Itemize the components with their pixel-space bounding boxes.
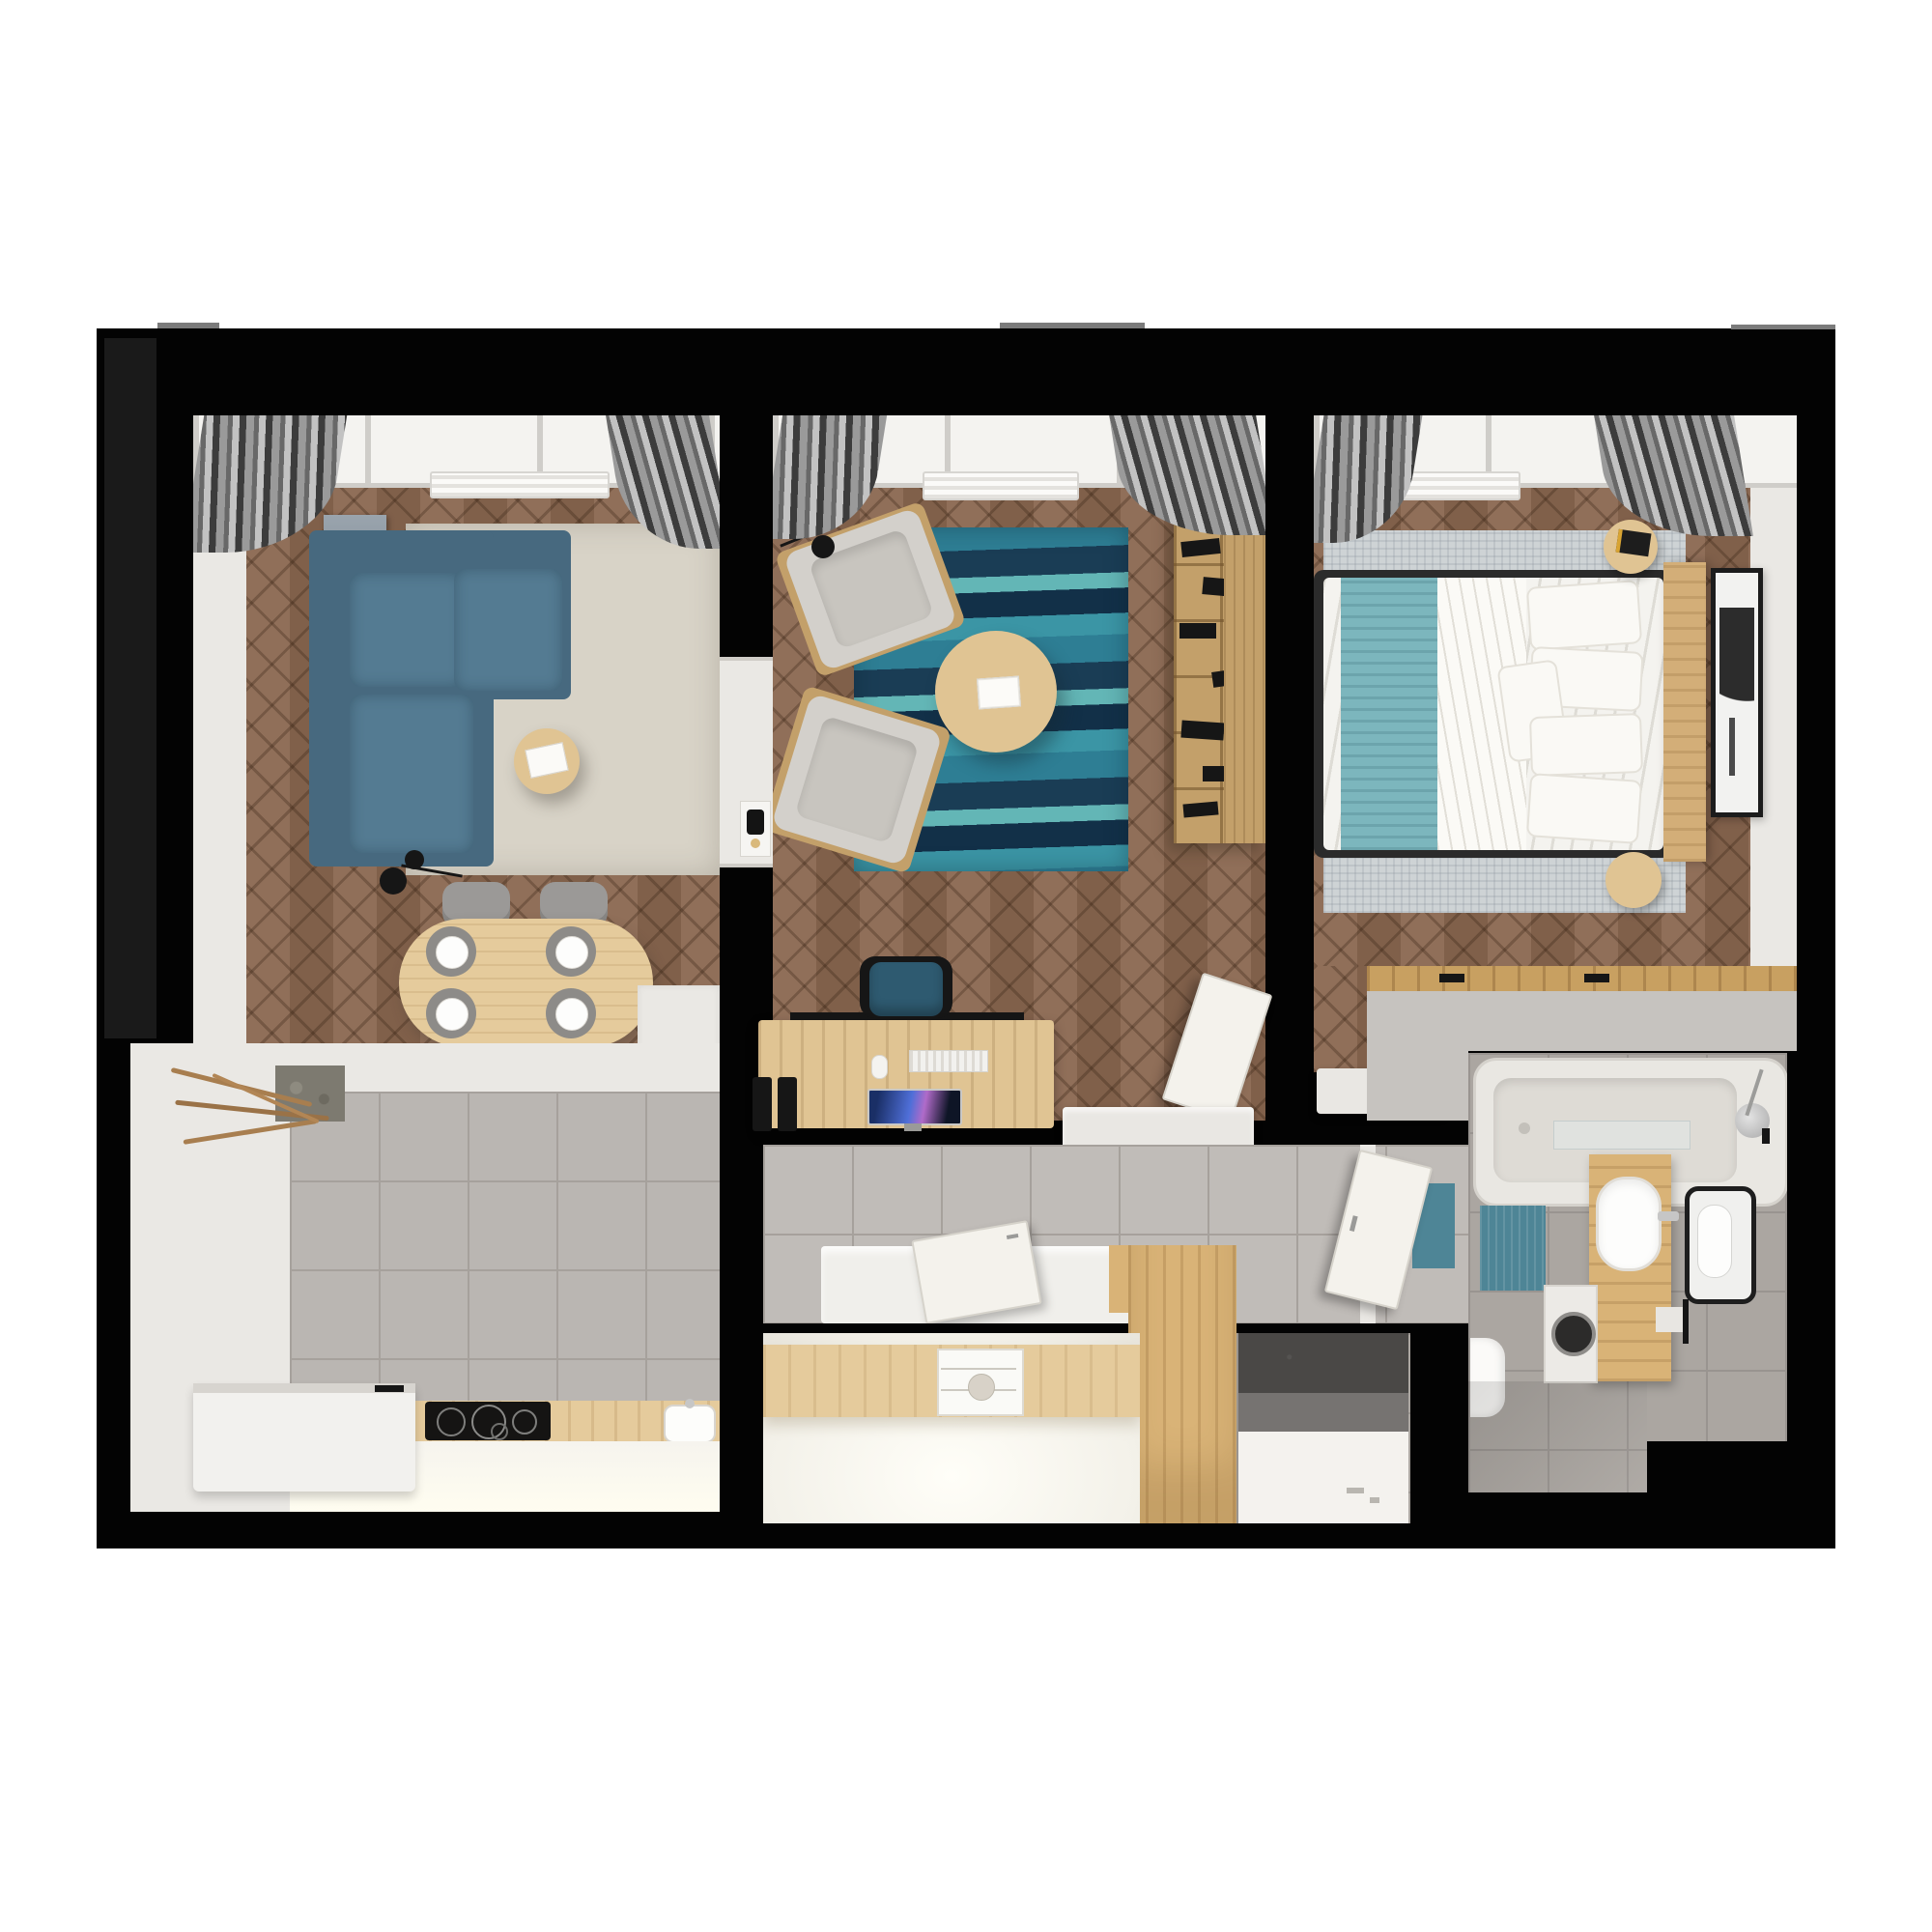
plate bbox=[436, 998, 469, 1031]
towel bbox=[1656, 1307, 1683, 1332]
glass-shelf bbox=[1553, 1121, 1690, 1150]
open-book bbox=[977, 676, 1021, 710]
washer-drum bbox=[1551, 1312, 1596, 1356]
kitchen bbox=[130, 1043, 720, 1512]
nightstand bbox=[1605, 852, 1662, 908]
burner bbox=[512, 1409, 537, 1435]
living-room-left-wall bbox=[193, 483, 246, 1092]
door-handle bbox=[1007, 1234, 1019, 1239]
towel-bar-rail bbox=[1683, 1299, 1689, 1344]
pillow bbox=[1526, 773, 1642, 844]
intercom-button bbox=[751, 838, 760, 848]
magazine bbox=[1615, 529, 1651, 556]
living-room bbox=[193, 415, 720, 1092]
bookshelf-side-panel bbox=[1224, 507, 1265, 843]
mirror-reflection bbox=[1697, 1205, 1732, 1278]
wardrobe-rail bbox=[1367, 966, 1797, 991]
desk-chair bbox=[860, 951, 952, 1024]
drain bbox=[1347, 1488, 1364, 1493]
bathroom bbox=[1468, 1053, 1787, 1492]
intercom-screen bbox=[747, 810, 764, 835]
washing-machine bbox=[1544, 1285, 1598, 1383]
branch-decor bbox=[169, 1058, 362, 1159]
drawer-organizer bbox=[937, 1349, 1024, 1416]
chair-seat bbox=[869, 962, 943, 1016]
teal-throw bbox=[1341, 578, 1437, 850]
mirror bbox=[1685, 1186, 1756, 1304]
lamp-shade bbox=[380, 867, 407, 895]
magazines bbox=[525, 742, 568, 779]
round-coffee-table bbox=[935, 631, 1057, 753]
plate bbox=[555, 998, 588, 1031]
bowl bbox=[968, 1374, 995, 1401]
wall-cut bbox=[1647, 1441, 1787, 1492]
art-abstract bbox=[1719, 608, 1754, 733]
radiator bbox=[923, 471, 1079, 500]
bookshelf bbox=[1174, 507, 1265, 843]
corner-sofa bbox=[309, 530, 571, 867]
books bbox=[1182, 801, 1218, 817]
faucet-handle bbox=[1762, 1128, 1770, 1144]
nightstand bbox=[1604, 520, 1658, 574]
closet bbox=[763, 1333, 1140, 1523]
place-setting bbox=[426, 926, 476, 977]
pillow bbox=[1529, 713, 1643, 777]
monitor-stand bbox=[904, 1123, 922, 1131]
plate bbox=[555, 936, 588, 969]
drain bbox=[1370, 1497, 1379, 1503]
radiator bbox=[430, 471, 610, 498]
apartment-outline bbox=[97, 328, 1835, 1548]
shower-tray bbox=[1238, 1432, 1408, 1523]
keyboard bbox=[909, 1050, 988, 1072]
dark-mat-light bbox=[1238, 1393, 1408, 1432]
books bbox=[1179, 623, 1216, 639]
lamp-arm bbox=[401, 864, 463, 877]
kitchen-sink bbox=[664, 1405, 716, 1443]
sofa-cushion bbox=[350, 695, 473, 853]
burner bbox=[491, 1423, 508, 1440]
burner bbox=[437, 1407, 466, 1436]
plate bbox=[436, 936, 469, 969]
place-setting bbox=[546, 988, 596, 1038]
wardrobe-handle bbox=[1439, 974, 1464, 982]
file-holders bbox=[753, 1077, 799, 1131]
sconce-shade bbox=[811, 535, 835, 558]
wardrobe-floor bbox=[1367, 1051, 1468, 1121]
monitor bbox=[867, 1089, 962, 1125]
round-side-table bbox=[514, 728, 580, 794]
wall-notch bbox=[157, 323, 219, 328]
bedroom-floor-extension bbox=[1314, 966, 1367, 1072]
dark-mat bbox=[1238, 1333, 1408, 1393]
mouse bbox=[871, 1055, 888, 1079]
headboard bbox=[1663, 562, 1706, 862]
file-holder bbox=[778, 1077, 797, 1131]
teal-bath-mat bbox=[1480, 1206, 1546, 1291]
sofa-cushion bbox=[350, 573, 464, 687]
floor-step-shadow bbox=[1468, 1381, 1647, 1492]
white-bench bbox=[193, 1383, 415, 1492]
pillow bbox=[1526, 580, 1642, 651]
induction-cooktop bbox=[425, 1402, 551, 1440]
tall-wood-cabinet bbox=[1128, 1245, 1236, 1523]
wardrobe-floor bbox=[1367, 991, 1797, 1051]
wall-notch bbox=[1000, 323, 1145, 328]
floor-plan-render bbox=[0, 0, 1932, 1932]
wall-art-frame bbox=[1711, 568, 1763, 817]
bench-handle bbox=[375, 1385, 404, 1392]
books bbox=[1180, 538, 1220, 557]
drain bbox=[1519, 1122, 1530, 1134]
shower-room bbox=[1236, 1333, 1410, 1523]
door-handle bbox=[1350, 1215, 1358, 1232]
towel-bar bbox=[1656, 1299, 1692, 1344]
sink-faucet bbox=[1658, 1211, 1679, 1221]
balcony-dark-strip bbox=[104, 338, 156, 1038]
sofa-cushion bbox=[454, 569, 562, 691]
branch bbox=[183, 1119, 317, 1145]
place-setting bbox=[546, 926, 596, 977]
double-bed bbox=[1314, 570, 1671, 858]
intercom-panel bbox=[740, 801, 771, 857]
file-holder bbox=[753, 1077, 772, 1131]
art-abstract bbox=[1729, 718, 1735, 776]
drawer-slot bbox=[941, 1368, 1016, 1370]
faucet bbox=[685, 1399, 695, 1408]
oval-sink bbox=[1596, 1177, 1662, 1271]
dining-table bbox=[399, 919, 653, 1047]
bedroom bbox=[1314, 415, 1797, 966]
wall-notch bbox=[1731, 325, 1835, 329]
books bbox=[1180, 720, 1224, 740]
wardrobe-handle bbox=[1584, 974, 1609, 982]
place-setting bbox=[426, 988, 476, 1038]
